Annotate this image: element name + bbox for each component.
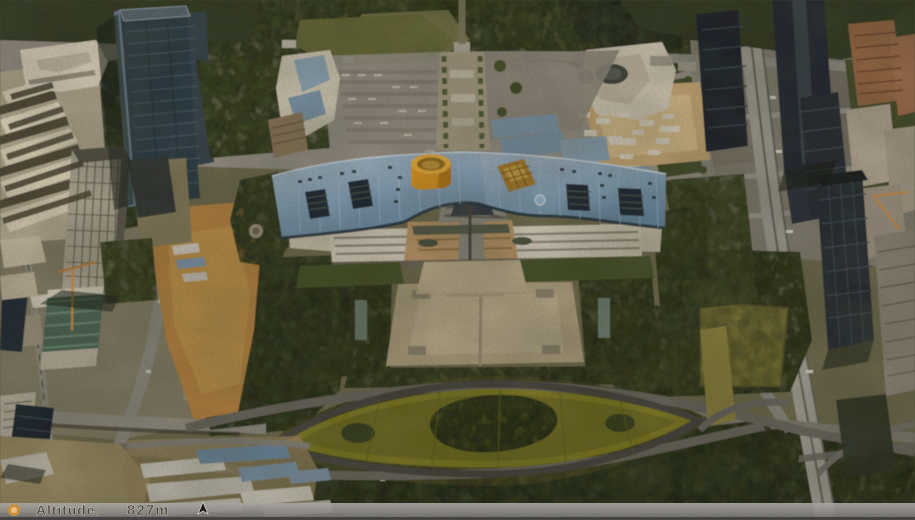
svg-text:Altitude:: Altitude: — [36, 502, 101, 518]
svg-text:827m: 827m — [127, 503, 170, 519]
